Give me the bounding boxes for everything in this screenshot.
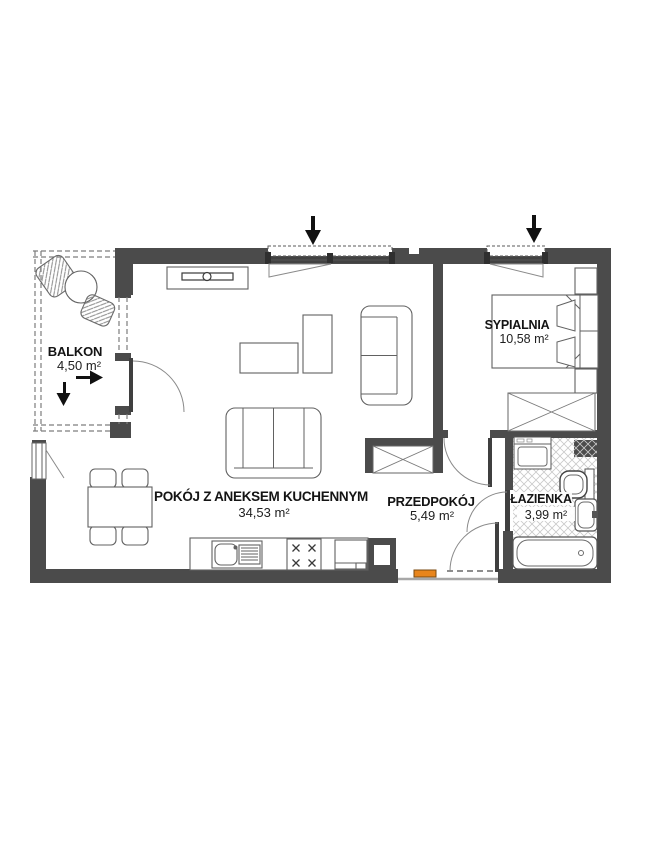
hallway: PRZEDPOKÓJ 5,49 m² xyxy=(373,446,475,523)
floor-plan-canvas: BALKON 4,50 m² xyxy=(0,0,653,844)
bathroom: ŁAZIENKA 3,99 m² xyxy=(510,437,598,569)
wall-right xyxy=(597,248,611,583)
wall-balcony-corner-bottom xyxy=(110,422,131,438)
nightstand-top-icon xyxy=(575,268,597,294)
balcony-arrow-down xyxy=(57,382,71,406)
wall-top-seam-notch xyxy=(409,246,419,254)
dining-set-icon xyxy=(88,469,152,545)
window-living xyxy=(265,246,395,277)
hallway-area: 5,49 m² xyxy=(410,508,455,523)
balcony-label: BALKON xyxy=(48,344,102,359)
entrance-threshold-marker xyxy=(414,570,436,577)
hallway-label: PRZEDPOKÓJ xyxy=(387,494,475,509)
wall-living-bedroom xyxy=(433,264,443,473)
hallway-wardrobe-icon xyxy=(373,446,433,473)
kitchen-stub-inner xyxy=(374,545,390,565)
tv-icon xyxy=(182,273,233,281)
bedroom-door xyxy=(444,438,492,487)
wall-balcony-block3 xyxy=(115,406,131,415)
wall-left xyxy=(30,477,46,583)
window-left xyxy=(32,443,64,479)
balcony: BALKON 4,50 m² xyxy=(33,251,117,431)
balcony-door xyxy=(129,358,184,412)
balcony-area: 4,50 m² xyxy=(57,358,102,373)
wall-balcony-block2 xyxy=(115,353,131,361)
kitchen-sink-icon xyxy=(212,541,262,568)
kitchen-counter xyxy=(190,538,368,570)
living-room: POKÓJ Z ANEKSEM KUCHENNYM 34,53 m² xyxy=(88,267,412,570)
window-bedroom xyxy=(484,246,548,277)
bedroom-area: 10,58 m² xyxy=(499,332,548,346)
washing-machine-icon xyxy=(514,437,551,469)
nightstand-bottom-icon xyxy=(575,369,597,393)
bedroom: SYPIALNIA 10,58 m² xyxy=(485,268,598,431)
stove-icon xyxy=(287,539,321,570)
living-room-label: POKÓJ Z ANEKSEM KUCHENNYM xyxy=(154,489,368,504)
wall-bath-left-upper xyxy=(505,430,513,490)
floor-plan-svg: BALKON 4,50 m² xyxy=(0,0,653,844)
wall-bottom-right xyxy=(498,569,611,583)
bedroom-label: SYPIALNIA xyxy=(485,318,550,332)
fridge-icon xyxy=(335,540,367,569)
bedroom-wardrobe-icon xyxy=(508,393,595,431)
wall-bottom-left xyxy=(30,569,398,583)
wall-hall-wardrobe-top xyxy=(365,438,433,446)
wall-bath-left-lower xyxy=(503,531,513,573)
sink-icon xyxy=(575,499,598,531)
wall-balcony-block1 xyxy=(115,290,131,298)
bathroom-label: ŁAZIENKA xyxy=(510,492,572,506)
sofa-bottom-icon xyxy=(226,408,321,478)
sofa-right-icon xyxy=(361,306,412,405)
window-arrow-living xyxy=(305,216,321,245)
coffee-table-icon xyxy=(240,343,298,373)
side-table-icon xyxy=(303,315,332,373)
living-room-area: 34,53 m² xyxy=(238,505,290,520)
wall-hall-wardrobe-left xyxy=(365,438,373,473)
entrance-door xyxy=(398,522,499,579)
bathroom-area: 3,99 m² xyxy=(525,508,567,522)
bathtub-icon xyxy=(513,537,597,569)
wall-bedroom-hall-stub xyxy=(443,430,448,438)
window-arrow-bedroom xyxy=(526,215,542,243)
